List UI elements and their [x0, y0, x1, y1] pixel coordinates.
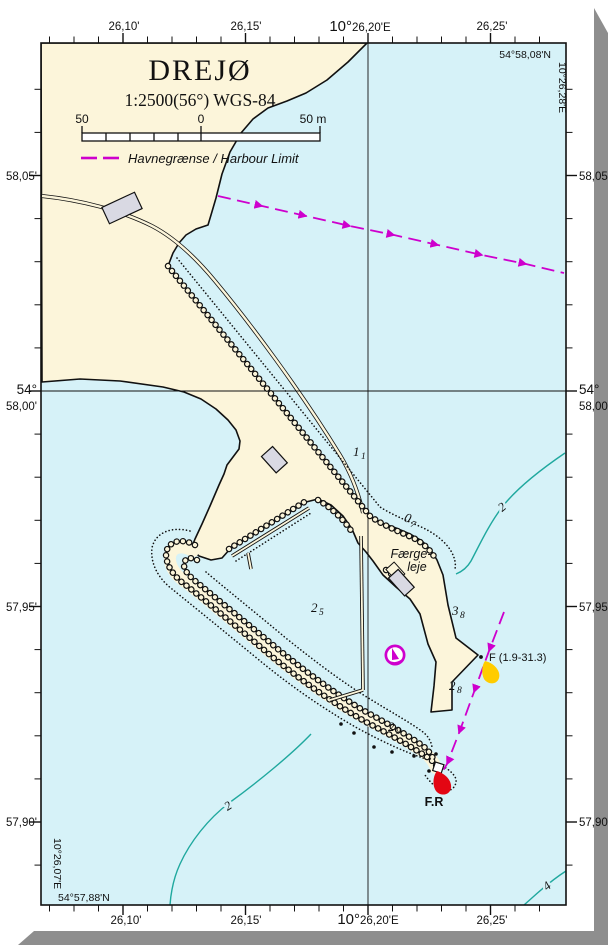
- axis-right-54deg: 54°: [579, 382, 599, 397]
- chart-title: DREJØ: [148, 54, 251, 87]
- sounding-1-1: 1: [353, 444, 360, 459]
- marina-symbol: [385, 645, 406, 666]
- light-fr-label: F.R: [425, 795, 444, 809]
- chart-page: 2 2 2 2 4 4 1 1 0 7 2 5 3 8 2 8 2 9 Færg…: [0, 0, 608, 945]
- axis-right-58-00: 58,00': [579, 401, 608, 413]
- scale-bar-zero-label: 0: [198, 112, 205, 126]
- sounding-2-8: 2: [449, 678, 456, 693]
- svg-text:1: 1: [361, 452, 366, 462]
- corner-label-bottom-left-lat: 54°57,88'N: [58, 892, 110, 904]
- axis-bottom-26-10: 26,10': [111, 915, 142, 927]
- svg-text:8: 8: [460, 611, 465, 621]
- axis-top-26-10: 26,10': [109, 21, 140, 33]
- axis-top-meridian-deg: 10°: [329, 18, 352, 35]
- map-area: 2 2 2 2 4 4 1 1 0 7 2 5 3 8 2 8 2 9 Færg…: [41, 43, 568, 905]
- corner-label-top-right-lat: 54°58,08'N: [499, 49, 551, 61]
- ferry-berth-label-line1: Færge-: [391, 547, 432, 561]
- nautical-chart-svg: 2 2 2 2 4 4 1 1 0 7 2 5 3 8 2 8 2 9 Færg…: [0, 0, 608, 945]
- axis-top-26-25: 26,25': [477, 21, 508, 33]
- axis-right-58-05: 58,05': [579, 171, 608, 183]
- axis-bottom-26-25: 26,25': [477, 915, 508, 927]
- chart-scale-text: 1:2500(56°) WGS-84: [124, 90, 275, 110]
- axis-right-57-95: 57,95': [579, 602, 608, 614]
- axis-bottom-meridian-min: 26,20'E: [360, 915, 399, 927]
- axis-right-57-90: 57,90': [579, 817, 608, 829]
- axis-left-58-05: 58,05': [6, 171, 37, 183]
- axis-top-meridian-min: 26,20'E: [352, 22, 391, 34]
- axis-bottom-meridian-deg: 10°: [337, 911, 360, 928]
- axis-left-57-90: 57,90': [6, 817, 37, 829]
- axis-left-58-00: 58,00': [6, 401, 37, 413]
- axis-top-26-15: 26,15': [231, 21, 262, 33]
- ferry-berth-label-line2: leje: [407, 560, 427, 574]
- page-shadow-bottom: [18, 931, 594, 945]
- light-f-label: F (1.9-31.3): [489, 652, 546, 664]
- sounding-2-9: 2: [388, 719, 395, 734]
- harbour-limit-legend-label: Havnegrænse / Harbour Limit: [128, 151, 300, 166]
- sounding-2-5: 2: [311, 600, 318, 615]
- scale-bar-left-label: 50: [75, 112, 89, 126]
- corner-label-left-lon: 10°26,07'E: [51, 838, 63, 889]
- svg-text:5: 5: [319, 608, 324, 618]
- svg-text:8: 8: [457, 686, 462, 696]
- scale-bar-right-label: 50 m: [300, 112, 327, 126]
- axis-left-54deg: 54°: [17, 382, 37, 397]
- axis-left-57-95: 57,95': [6, 602, 37, 614]
- axis-bottom-26-15: 26,15': [231, 915, 262, 927]
- page-shadow-right: [594, 8, 608, 945]
- svg-text:9: 9: [396, 727, 401, 737]
- sounding-3-8: 3: [451, 603, 459, 618]
